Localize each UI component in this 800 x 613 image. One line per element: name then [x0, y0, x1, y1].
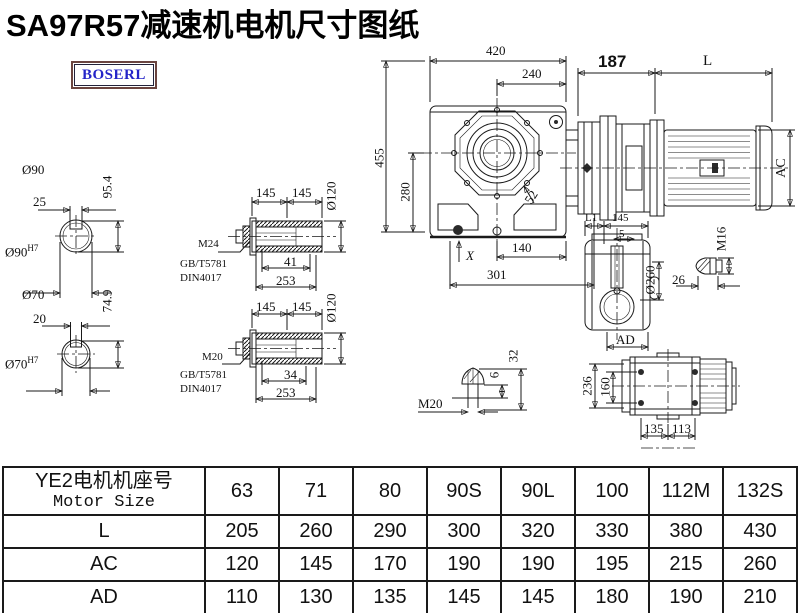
table-row-ac: AC 120 145 170 190 190 195 215 260 — [3, 548, 797, 581]
row-label-l: L — [3, 515, 205, 548]
dim-front-foot-mark: X — [466, 249, 474, 262]
dim-motor-flange-length: 187 — [598, 52, 626, 72]
cell-l-6: 380 — [649, 515, 723, 548]
dim-side-gap: 5 — [619, 229, 625, 240]
dim-hollow2-standard2: DIN4017 — [180, 384, 222, 395]
dim-hollow1-bolt: M24 — [198, 239, 219, 250]
dim-hollow1-length: 253 — [276, 274, 296, 287]
cell-ad-3: 145 — [427, 581, 501, 613]
dim-hollow1-standard1: GB/T5781 — [180, 259, 227, 270]
dim-hollow1-seg2: 145 — [292, 186, 312, 199]
dim-bottom-plug-length: 32 — [507, 350, 520, 363]
dim-front-height: 455 — [373, 148, 386, 168]
dim-motor-body-length: L — [703, 54, 712, 69]
dim-shaft1-key: 25 — [33, 195, 46, 208]
dim-mount-left: 135 — [644, 422, 664, 435]
table-header-row: YE2电机机座号 Motor Size 63 71 80 90S 90L 100… — [3, 467, 797, 515]
dim-shaft1-diameter: Ø90 — [22, 163, 44, 176]
dim-bottom-plug-thread: M20 — [418, 397, 443, 410]
cell-ad-2: 135 — [353, 581, 427, 613]
cell-l-4: 320 — [501, 515, 575, 548]
dim-side-plug-thread: M16 — [715, 227, 728, 252]
technical-drawing — [0, 0, 800, 462]
table-row-ad: AD 110 130 135 145 145 180 190 210 — [3, 581, 797, 613]
cell-l-0: 205 — [205, 515, 279, 548]
dim-hollow2-bolt: M20 — [202, 352, 223, 363]
dim-mount-bolt-spacing: 160 — [599, 377, 612, 397]
dim-hollow1-bore: Ø120 — [325, 182, 338, 211]
dim-hollow1-depth: 41 — [284, 255, 297, 268]
dim-hollow2-seg1: 145 — [256, 300, 276, 313]
motor-size-71: 71 — [279, 467, 353, 515]
drawing-sheet: SA97R57减速机电机尺寸图纸 BOSERL — [0, 0, 800, 613]
dim-bottom-plug-tip: 6 — [488, 372, 501, 379]
dim-shaft1-fit: Ø90H7 — [5, 244, 38, 258]
dim-front-half-base: 140 — [512, 241, 532, 254]
motor-size-112m: 112M — [649, 467, 723, 515]
dim-side-l1: L1 — [585, 213, 597, 224]
cell-ad-6: 190 — [649, 581, 723, 613]
dim-hollow1-seg1: 145 — [256, 186, 276, 199]
cell-ac-4: 190 — [501, 548, 575, 581]
cell-l-3: 300 — [427, 515, 501, 548]
dim-shaft1-overall: 95.4 — [101, 176, 114, 199]
dim-front-half-width: 240 — [522, 67, 542, 80]
cell-ac-6: 215 — [649, 548, 723, 581]
cell-ad-1: 130 — [279, 581, 353, 613]
dim-side-plug-length: 26 — [672, 273, 685, 286]
cell-ac-5: 195 — [575, 548, 649, 581]
cell-l-1: 260 — [279, 515, 353, 548]
motor-size-63: 63 — [205, 467, 279, 515]
row-label-ad: AD — [3, 581, 205, 613]
dim-shaft2-diameter: Ø70 — [22, 288, 44, 301]
dim-shaft2-overall: 74.9 — [101, 290, 114, 313]
cell-ac-3: 190 — [427, 548, 501, 581]
cell-ad-7: 210 — [723, 581, 797, 613]
motor-size-100: 100 — [575, 467, 649, 515]
dim-front-base: 301 — [487, 268, 507, 281]
row-label-ac: AC — [3, 548, 205, 581]
cell-l-5: 330 — [575, 515, 649, 548]
dim-hollow2-seg2: 145 — [292, 300, 312, 313]
cell-ac-0: 120 — [205, 548, 279, 581]
dim-hollow2-length: 253 — [276, 386, 296, 399]
dim-motor-frame-diameter: AC — [775, 158, 789, 177]
dim-front-width: 420 — [486, 44, 506, 57]
motor-size-80: 80 — [353, 467, 427, 515]
dim-front-lower-height: 280 — [399, 182, 412, 202]
dim-mount-right: 113 — [672, 422, 691, 435]
motor-size-90s: 90S — [427, 467, 501, 515]
cell-ac-1: 145 — [279, 548, 353, 581]
dim-hollow2-depth: 34 — [284, 368, 297, 381]
dim-side-length: 145 — [612, 213, 629, 224]
cell-ac-2: 170 — [353, 548, 427, 581]
table-header-label: YE2电机机座号 Motor Size — [3, 467, 205, 515]
cell-l-2: 290 — [353, 515, 427, 548]
dim-shaft2-key: 20 — [33, 312, 46, 325]
table-row-l: L 205 260 290 300 320 330 380 430 — [3, 515, 797, 548]
cell-ad-0: 110 — [205, 581, 279, 613]
cell-ad-5: 180 — [575, 581, 649, 613]
motor-size-90l: 90L — [501, 467, 575, 515]
cell-l-7: 430 — [723, 515, 797, 548]
dim-hollow1-standard2: DIN4017 — [180, 273, 222, 284]
table-header-cn: YE2电机机座号 — [4, 470, 204, 493]
table-header-en: Motor Size — [4, 493, 204, 513]
cell-ac-7: 260 — [723, 548, 797, 581]
dim-side-ad: AD — [616, 333, 635, 346]
dim-hollow2-standard1: GB/T5781 — [180, 370, 227, 381]
motor-size-132s: 132S — [723, 467, 797, 515]
motor-dimension-table: YE2电机机座号 Motor Size 63 71 80 90S 90L 100… — [2, 466, 798, 613]
dim-shaft2-fit: Ø70H7 — [5, 356, 38, 370]
dim-side-flange-diameter: Ø260 — [644, 266, 657, 295]
dim-hollow2-bore: Ø120 — [325, 294, 338, 323]
dim-mount-height: 236 — [581, 376, 594, 396]
cell-ad-4: 145 — [501, 581, 575, 613]
